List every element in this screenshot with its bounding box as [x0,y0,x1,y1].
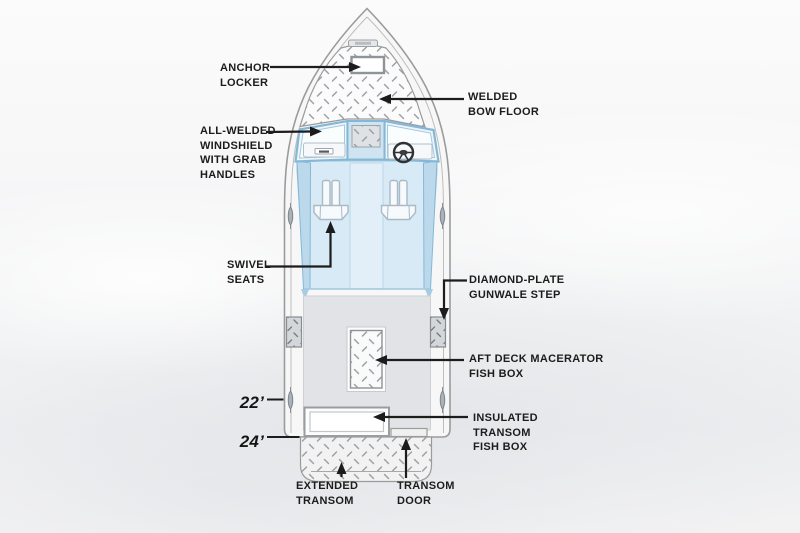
label-welded-bow-floor: WELDED BOW FLOOR [468,90,539,119]
label-macerator-fish-box: AFT DECK MACERATOR FISH BOX [469,352,604,381]
extended-transom-plate [301,437,432,482]
label-transom-door: TRANSOM DOOR [397,479,455,508]
aft-deck-macerator-fish-box [351,331,383,389]
cockpit [297,161,437,300]
transom-door [391,429,427,437]
boat-diagram: ANCHOR LOCKER WELDED BOW FLOOR ALL-WELDE… [0,0,800,533]
walkthrough-door-plate [352,126,380,148]
bow-section [300,40,425,127]
anchor-locker-hatch [352,57,385,73]
port-dash [304,143,346,157]
boat-illustration [0,0,800,533]
cockpit-center-aisle [350,163,383,289]
grab-handle [319,151,329,153]
bow-cleat [349,40,378,47]
label-swivel-seats: SWIVEL SEATS [227,258,271,287]
label-extended-transom: EXTENDED TRANSOM [296,479,358,508]
dimension-22ft: 22’ [204,394,264,411]
label-insulated-fish-box: INSULATED TRANSOM FISH BOX [473,411,538,455]
extended-transom [301,437,432,482]
gunwale-step-right [431,317,446,347]
label-anchor-locker: ANCHOR LOCKER [220,61,270,90]
label-windshield: ALL-WELDED WINDSHIELD WITH GRAB HANDLES [200,124,276,182]
label-gunwale-step: DIAMOND-PLATE GUNWALE STEP [469,273,564,302]
gunwale-step-left [287,317,302,347]
insulated-fish-box-lid [310,412,384,432]
windshield [296,121,439,162]
dimension-24ft: 24’ [204,433,264,450]
